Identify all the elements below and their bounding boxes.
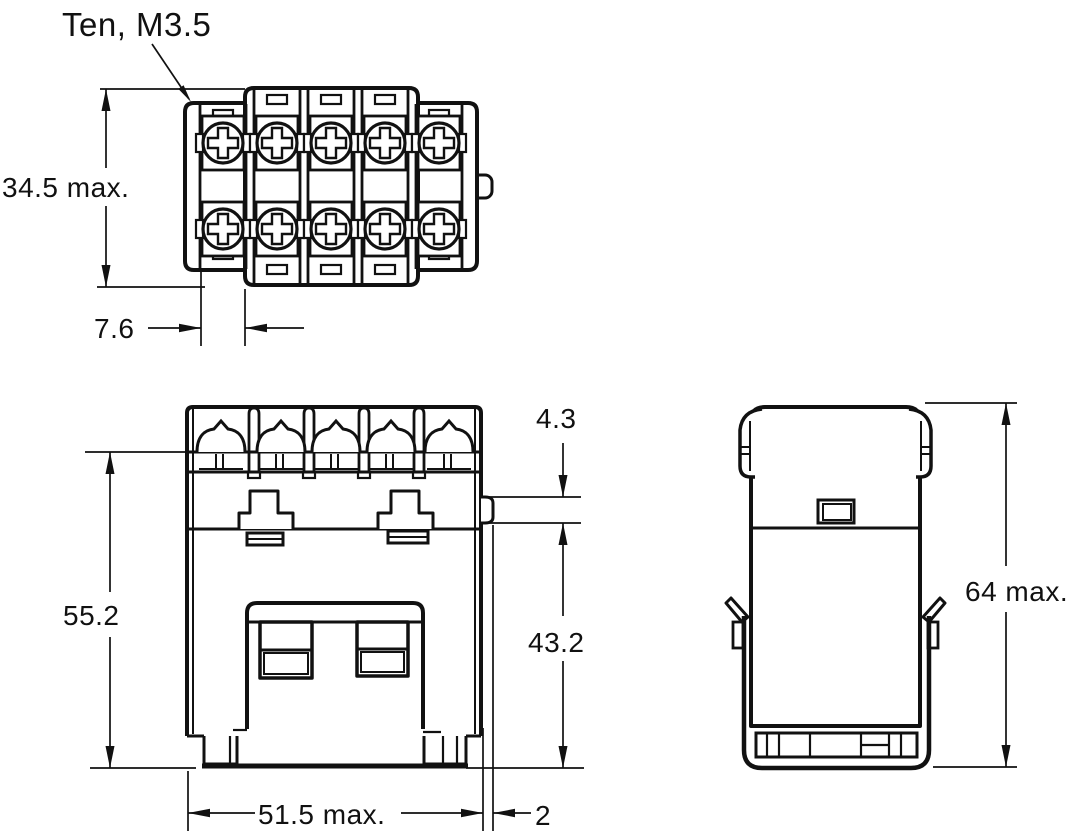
lower-height-label: 43.2	[528, 627, 585, 658]
dim-side-height: 64 max.	[925, 403, 1068, 767]
tab-offset-label: 4.3	[536, 403, 576, 434]
din-rail-block	[247, 603, 423, 729]
pitch-label: 7.6	[94, 313, 134, 344]
bottom-band	[756, 733, 917, 757]
top-height-label: 34.5 max.	[2, 172, 129, 203]
terminal-screw	[250, 202, 304, 256]
terminal-screw	[412, 202, 466, 256]
side-height-label: 64 max.	[965, 576, 1068, 607]
latch-claw-right	[923, 598, 945, 622]
terminal-screw	[250, 116, 304, 170]
terminal-note-label: Ten, M3.5	[62, 6, 211, 43]
side-body	[751, 407, 920, 726]
protrusion-label: 2	[535, 800, 551, 831]
front-height-label: 55.2	[63, 600, 120, 631]
terminal-screw	[304, 116, 358, 170]
front-view: 55.2 4.3 43.2	[63, 403, 585, 831]
technical-drawing-page: 34.5 max. Ten, M3.5 7.6	[0, 0, 1085, 840]
dim-front-height: 55.2	[63, 452, 196, 768]
terminal-screw	[358, 116, 412, 170]
terminal-screw	[304, 202, 358, 256]
terminal-screw	[358, 202, 412, 256]
top-view: 34.5 max. Ten, M3.5 7.6	[2, 6, 492, 346]
terminal-screw	[196, 202, 250, 256]
terminal-note: Ten, M3.5	[62, 6, 211, 102]
terminal-screw	[196, 116, 250, 170]
side-view: 64 max.	[726, 403, 1068, 768]
terminal-screw	[412, 116, 466, 170]
width-label: 51.5 max.	[258, 799, 385, 830]
relay-socket-dimension-drawing: 34.5 max. Ten, M3.5 7.6	[0, 0, 1085, 840]
side-tab-front	[481, 497, 493, 523]
dim-tab-offset: 4.3	[484, 403, 581, 545]
